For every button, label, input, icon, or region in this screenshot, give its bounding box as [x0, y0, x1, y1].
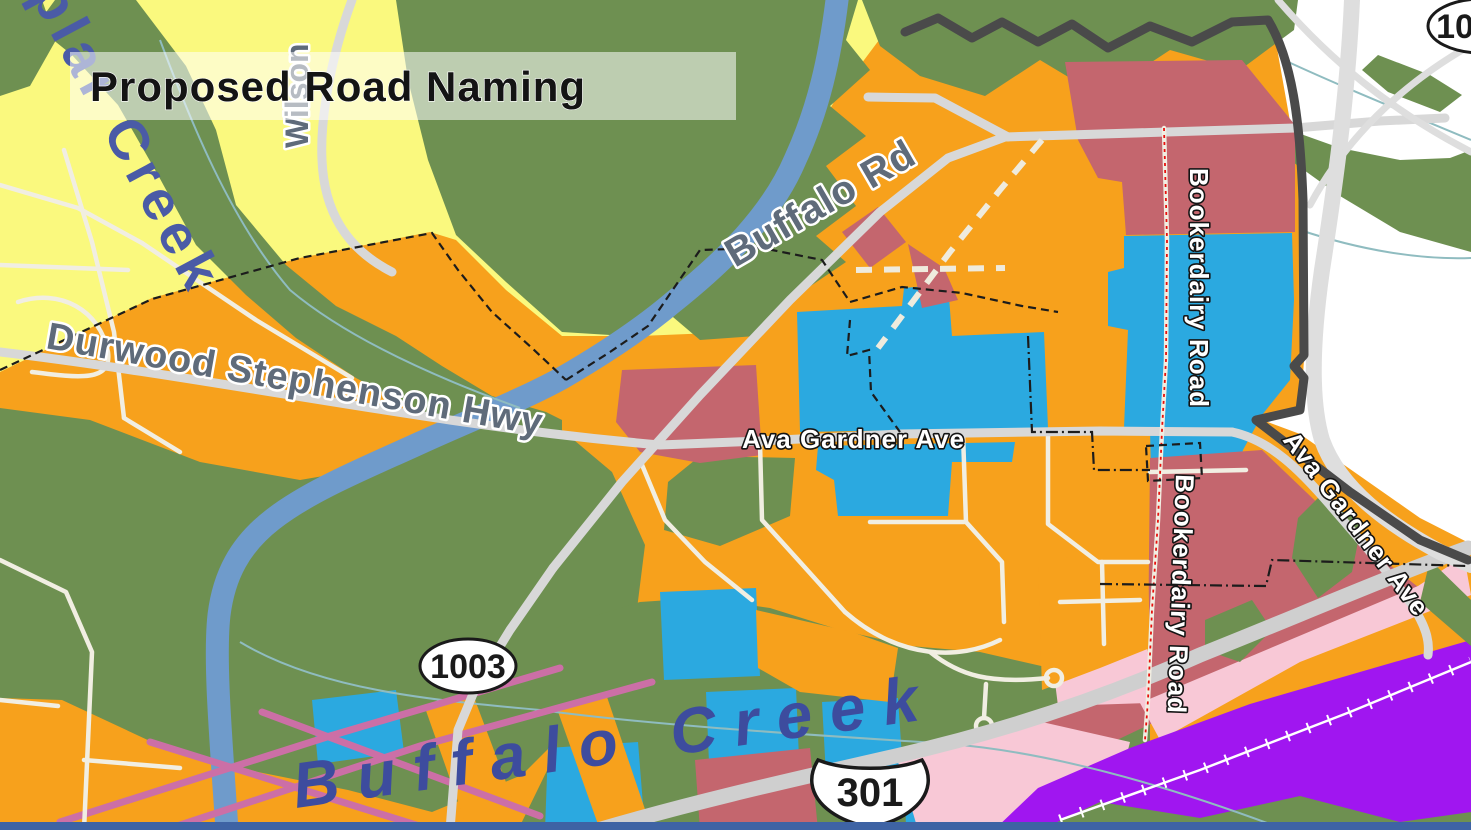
map-svg: 1003 301 10 plar Creek Wilson Buffalo Rd…	[0, 0, 1471, 830]
route-shield-partial-label: 10	[1436, 8, 1471, 46]
map-canvas: 1003 301 10 plar Creek Wilson Buffalo Rd…	[0, 0, 1471, 830]
bottom-bar	[0, 822, 1471, 830]
minor-road	[1060, 600, 1140, 602]
route-shield-1003-label: 1003	[430, 648, 506, 686]
title-banner: Proposed Road Naming	[70, 52, 736, 120]
minor-road	[1150, 470, 1246, 472]
ava-gardner-ave-label-center: Ava Gardner Ave	[742, 424, 965, 454]
minor-road	[984, 684, 986, 718]
blue-zone	[660, 588, 760, 680]
page-title: Proposed Road Naming	[90, 63, 586, 110]
route-shield-301-label: 301	[837, 771, 904, 815]
route-shield-1003: 1003	[420, 639, 516, 693]
bookerdairy-road-label-top: Bookerdairy Road	[1184, 168, 1214, 408]
